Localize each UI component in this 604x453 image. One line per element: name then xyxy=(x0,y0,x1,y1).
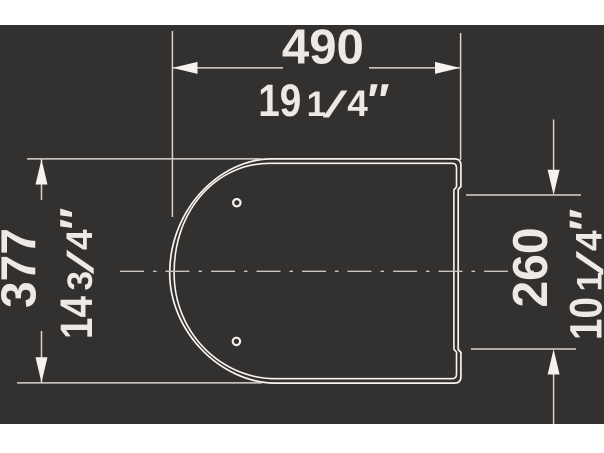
svg-text:″: ″ xyxy=(50,208,102,230)
svg-text:4: 4 xyxy=(347,83,368,124)
svg-text:4: 4 xyxy=(569,230,604,251)
svg-text:4: 4 xyxy=(59,229,100,250)
svg-text:″: ″ xyxy=(560,209,604,231)
svg-text:377: 377 xyxy=(0,228,47,308)
svg-text:19: 19 xyxy=(258,75,301,126)
svg-text:3: 3 xyxy=(61,271,100,290)
svg-text:14: 14 xyxy=(51,295,102,339)
svg-text:10: 10 xyxy=(561,297,604,340)
svg-text:490: 490 xyxy=(282,19,364,74)
svg-text:″: ″ xyxy=(367,74,389,126)
svg-text:1: 1 xyxy=(571,272,604,291)
svg-text:260: 260 xyxy=(503,228,558,308)
svg-text:1: 1 xyxy=(307,85,326,124)
